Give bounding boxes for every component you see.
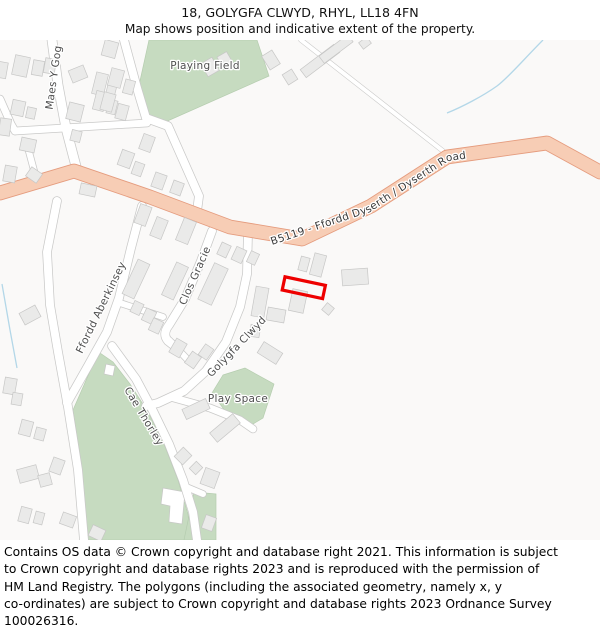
building xyxy=(10,99,26,116)
building xyxy=(341,268,368,286)
building xyxy=(11,392,23,406)
header: 18, GOLYGFA CLWYD, RHYL, LL18 4FN Map sh… xyxy=(0,0,600,40)
building xyxy=(266,307,286,323)
building xyxy=(70,129,82,142)
building xyxy=(0,118,12,136)
street-label: Playing Field xyxy=(170,60,240,72)
map-description-subtitle: Map shows position and indicative extent… xyxy=(0,21,600,37)
property-address-title: 18, GOLYGFA CLWYD, RHYL, LL18 4FN xyxy=(0,5,600,21)
street-label: Play Space xyxy=(208,393,268,405)
plot xyxy=(104,364,115,376)
copyright-line: HM Land Registry. The polygons (includin… xyxy=(4,579,594,596)
building xyxy=(25,107,36,120)
building xyxy=(38,473,53,488)
map-canvas: B5119 - Ffordd Dyserth / Dyserth RoadPla… xyxy=(0,40,600,540)
copyright-notice: Contains OS data © Crown copyright and d… xyxy=(0,540,600,630)
copyright-line: co-ordinates) are subject to Crown copyr… xyxy=(4,596,594,613)
building xyxy=(19,137,36,153)
page: 18, GOLYGFA CLWYD, RHYL, LL18 4FN Map sh… xyxy=(0,0,600,630)
building xyxy=(31,60,44,77)
copyright-line: to Crown copyright and database rights 2… xyxy=(4,561,594,578)
building xyxy=(3,165,18,183)
copyright-line: Contains OS data © Crown copyright and d… xyxy=(4,544,594,561)
copyright-line: 100026316. xyxy=(4,613,594,630)
map: B5119 - Ffordd Dyserth / Dyserth RoadPla… xyxy=(0,40,600,540)
